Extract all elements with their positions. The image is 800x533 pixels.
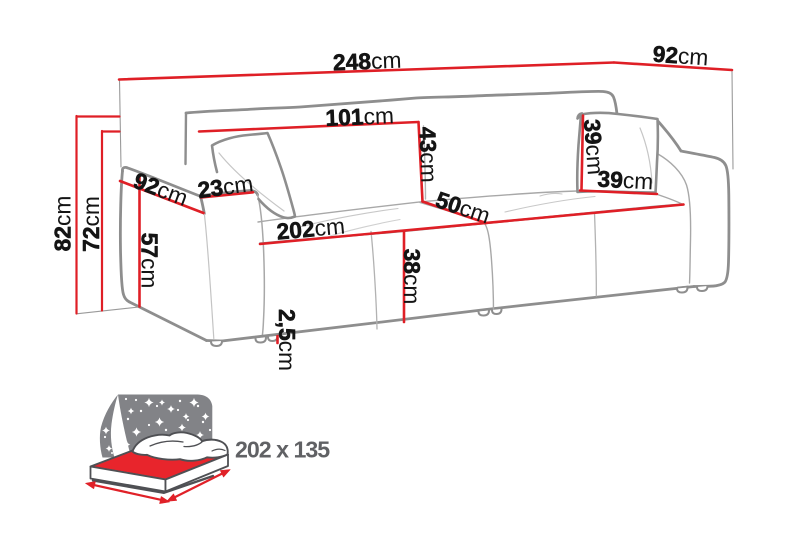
svg-text:2,5cm: 2,5cm	[274, 309, 300, 371]
svg-text:92cm: 92cm	[652, 41, 709, 71]
svg-text:248cm: 248cm	[333, 47, 402, 76]
svg-text:82cm: 82cm	[50, 196, 76, 252]
svg-text:38cm: 38cm	[399, 249, 425, 305]
svg-text:72cm: 72cm	[78, 196, 104, 252]
svg-text:39cm: 39cm	[597, 166, 654, 195]
svg-text:202 x 135: 202 x 135	[235, 437, 330, 463]
svg-text:101cm: 101cm	[325, 102, 394, 131]
svg-text:57cm: 57cm	[137, 233, 163, 289]
svg-text:43cm: 43cm	[415, 126, 443, 183]
